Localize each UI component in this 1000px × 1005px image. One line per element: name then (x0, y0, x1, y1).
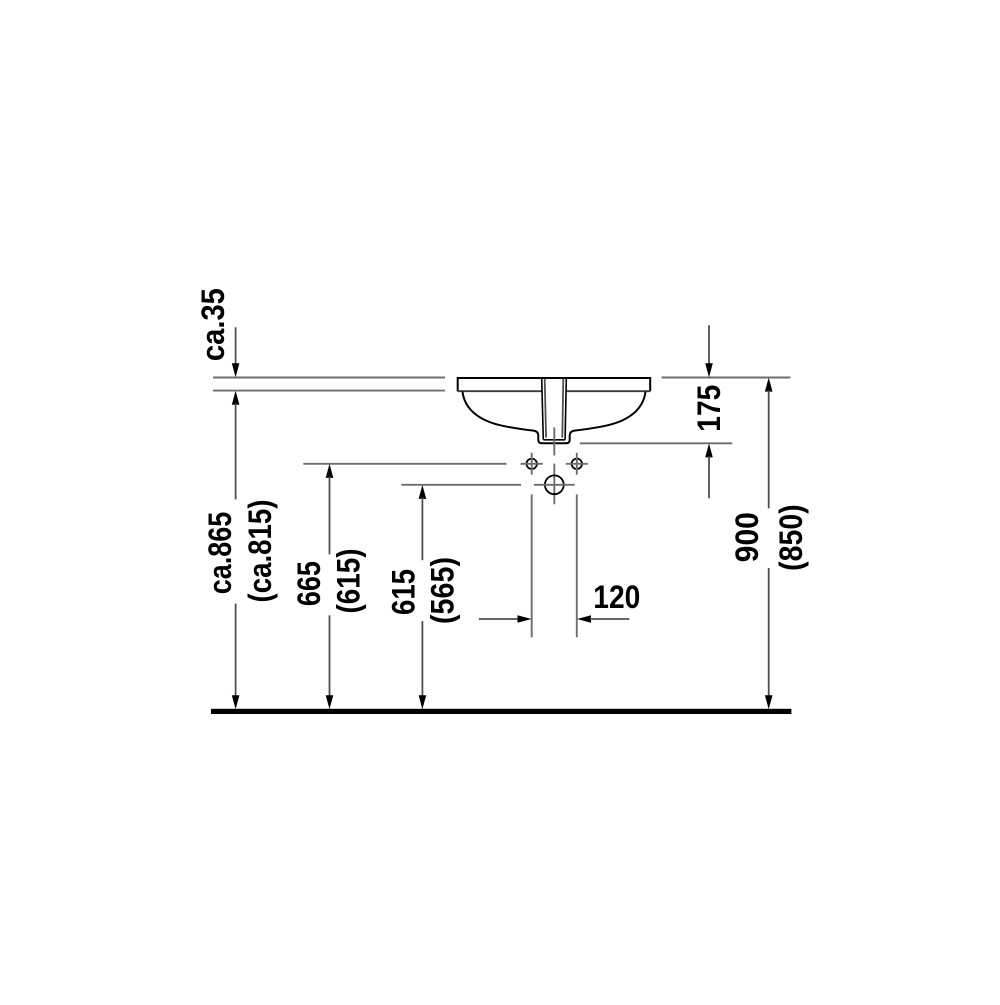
svg-text:900: 900 (729, 512, 765, 562)
svg-text:ca.35: ca.35 (195, 288, 231, 361)
svg-text:665: 665 (291, 561, 327, 606)
svg-text:ca.865: ca.865 (202, 512, 238, 595)
svg-text:(850): (850) (773, 504, 809, 571)
svg-text:175: 175 (691, 385, 727, 432)
svg-text:(ca.815): (ca.815) (242, 500, 278, 603)
svg-text:120: 120 (593, 579, 640, 615)
svg-text:(565): (565) (424, 557, 460, 624)
svg-text:(615): (615) (331, 549, 367, 614)
svg-text:615: 615 (386, 569, 422, 615)
